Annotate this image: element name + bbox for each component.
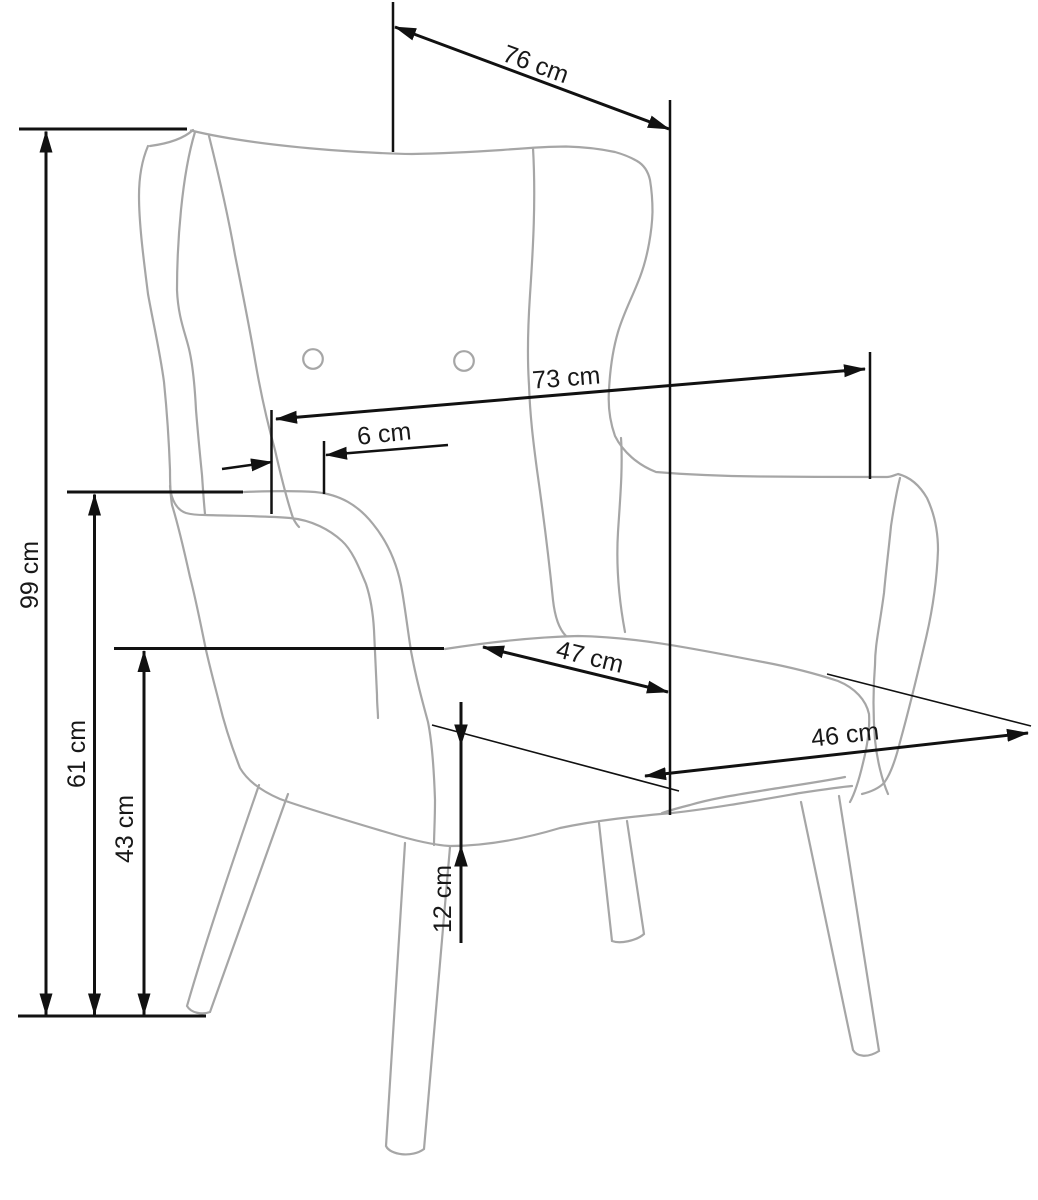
svg-text:99 cm: 99 cm xyxy=(16,541,44,609)
svg-text:6 cm: 6 cm xyxy=(356,417,413,451)
svg-text:43 cm: 43 cm xyxy=(111,795,139,863)
svg-text:61 cm: 61 cm xyxy=(63,720,91,788)
svg-text:73 cm: 73 cm xyxy=(531,361,601,394)
svg-text:12 cm: 12 cm xyxy=(429,865,457,933)
